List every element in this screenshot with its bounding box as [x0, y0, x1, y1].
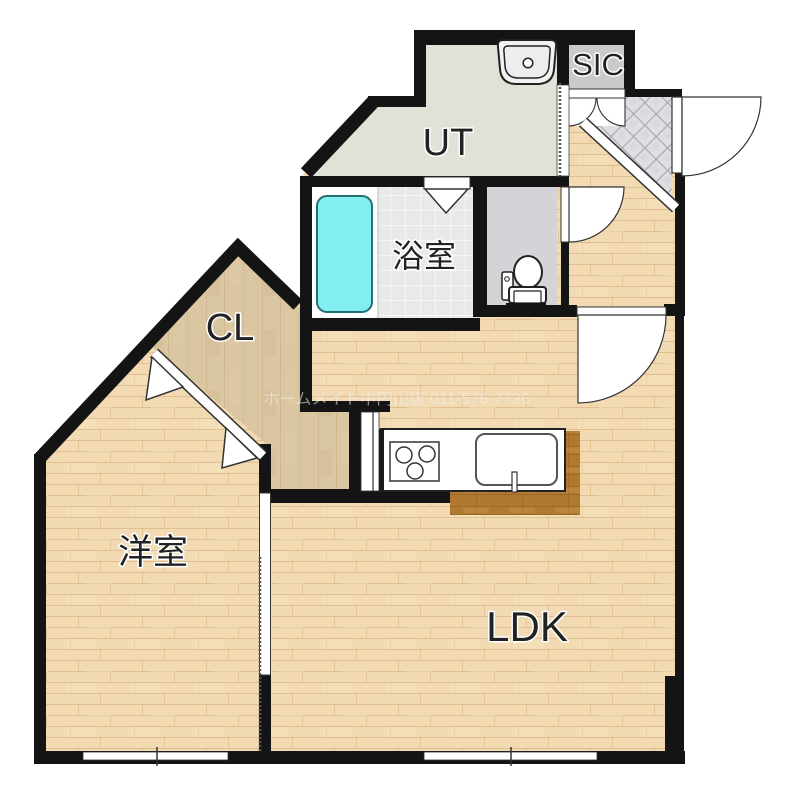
svg-text:ホームメイト中円山店 011-576-7736: ホームメイト中円山店 011-576-7736	[263, 390, 530, 408]
svg-text:UT: UT	[423, 122, 474, 164]
svg-text:LDK: LDK	[486, 603, 568, 650]
svg-text:浴室: 浴室	[392, 238, 456, 274]
svg-text:洋室: 洋室	[118, 533, 188, 572]
svg-text:SIC: SIC	[572, 47, 624, 82]
svg-text:CL: CL	[206, 307, 255, 349]
